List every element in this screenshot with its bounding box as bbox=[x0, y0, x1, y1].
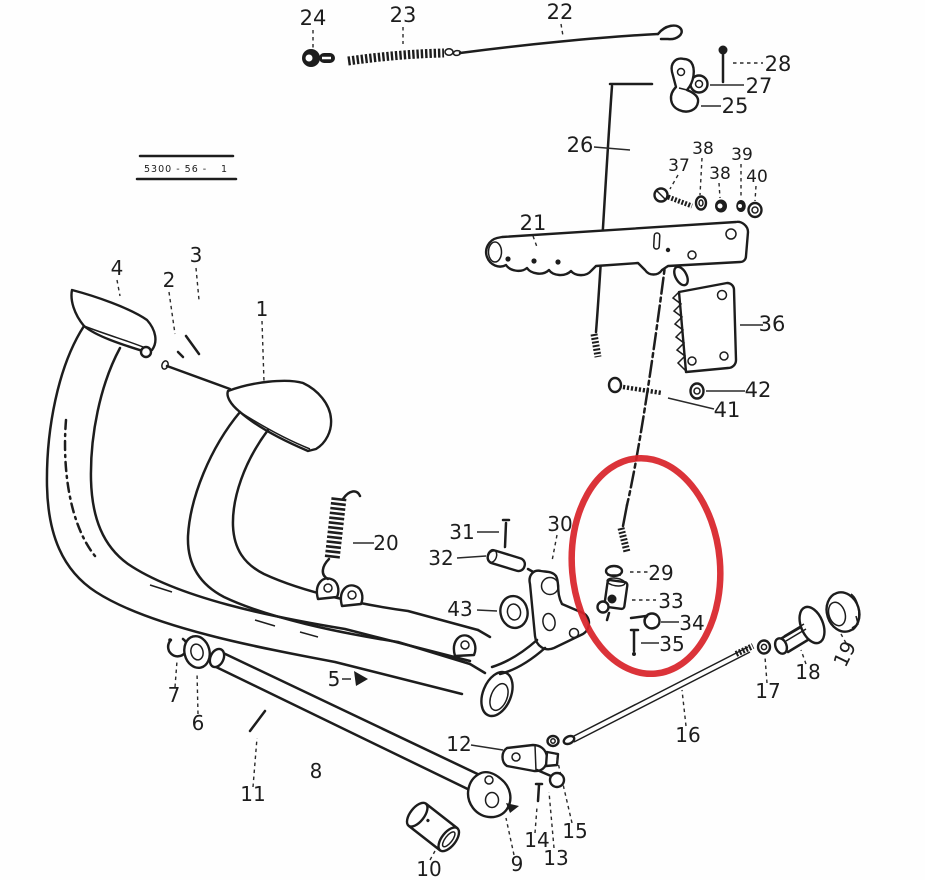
part-label-28: 28 bbox=[765, 52, 792, 76]
part-label-35: 35 bbox=[659, 632, 684, 656]
part-18-shaft: 18 bbox=[773, 603, 829, 684]
leader-4 bbox=[117, 280, 120, 296]
shaft-lug bbox=[317, 578, 338, 599]
part-label-4: 4 bbox=[111, 256, 124, 280]
part-label-9: 9 bbox=[511, 852, 524, 876]
part-21-rivet bbox=[505, 256, 510, 261]
leader-6 bbox=[197, 672, 198, 714]
part-label-21: 21 bbox=[520, 211, 547, 235]
title-block: 5300 - 56 - 1 bbox=[137, 156, 236, 179]
leader-11 bbox=[253, 738, 257, 787]
part-34-shaft bbox=[631, 616, 646, 618]
part-22-hook bbox=[658, 26, 682, 40]
part-21-quadrant-lever: 21 bbox=[486, 211, 748, 287]
leader-32 bbox=[457, 556, 486, 558]
part-23-tip bbox=[445, 49, 453, 55]
highlight-ellipse bbox=[563, 452, 729, 680]
part-label-12: 12 bbox=[446, 732, 471, 756]
part-label-42: 42 bbox=[745, 378, 772, 402]
part-40-nut bbox=[749, 203, 762, 217]
part-label-36: 36 bbox=[759, 312, 786, 336]
part-label-38b: 38 bbox=[709, 164, 731, 184]
part-label-14: 14 bbox=[524, 828, 549, 852]
part-15-body bbox=[548, 736, 559, 746]
part-6-outer bbox=[181, 633, 213, 670]
part-label-25: 25 bbox=[722, 94, 749, 118]
part-10-closed-end bbox=[403, 799, 431, 830]
part-label-15: 15 bbox=[562, 819, 587, 843]
part-26-threads bbox=[594, 334, 598, 357]
part-26-shaft bbox=[596, 86, 612, 332]
leader-22 bbox=[561, 24, 563, 36]
part-21-dot bbox=[666, 248, 670, 252]
part-12-clevis: 12 bbox=[446, 732, 558, 771]
leader-37 bbox=[670, 175, 678, 189]
part-6-washer: 6 bbox=[181, 633, 213, 735]
part-30-arm-tail bbox=[492, 640, 545, 674]
leader-16 bbox=[682, 690, 686, 726]
part-label-43: 43 bbox=[447, 597, 472, 621]
part-label-22: 22 bbox=[547, 0, 574, 24]
leader-9 bbox=[506, 818, 514, 855]
part-label-29: 29 bbox=[648, 561, 673, 585]
part-16-threads bbox=[736, 646, 753, 654]
control-rod-threads bbox=[621, 528, 627, 552]
part-38-nut-hole bbox=[718, 204, 723, 209]
control-rod-tip bbox=[623, 505, 627, 526]
part-12-body bbox=[503, 745, 548, 771]
part-label-40: 40 bbox=[746, 167, 768, 187]
part-label-8: 8 bbox=[310, 759, 323, 783]
part-36-serrated-plate: 36 bbox=[673, 283, 785, 372]
leader-30 bbox=[552, 535, 557, 561]
control-rod-shaft bbox=[627, 250, 667, 505]
part-18-end bbox=[773, 637, 789, 656]
leader-40 bbox=[755, 186, 756, 201]
part-37-bolt-shaft bbox=[668, 197, 692, 206]
part-label-23: 23 bbox=[390, 3, 417, 27]
part-label-30: 30 bbox=[547, 512, 572, 536]
part-21-trunnion-tab bbox=[671, 265, 690, 288]
parts-diagram-canvas: 5300 - 56 - 1 24 23 22 28 27 bbox=[0, 0, 925, 880]
part-21-rivet bbox=[531, 258, 536, 263]
part-16-rod: 16 bbox=[562, 646, 753, 747]
part-35-pin: 35 bbox=[631, 630, 685, 656]
part-32-clevis-pin: 32 bbox=[428, 546, 535, 573]
part-4-pedal-left: 4 bbox=[47, 256, 470, 694]
leader-12 bbox=[471, 745, 503, 750]
part-35-tip bbox=[632, 652, 636, 656]
control-rod-lower bbox=[621, 250, 667, 552]
part-38-washer bbox=[696, 197, 706, 210]
part-41-bolt: 41 bbox=[609, 378, 740, 422]
part-26-rod: 26 bbox=[567, 84, 652, 357]
part-label-7: 7 bbox=[168, 683, 181, 707]
part-10-cylinder bbox=[403, 799, 463, 854]
part-label-2: 2 bbox=[163, 268, 176, 292]
part-label-1: 1 bbox=[256, 297, 269, 321]
part-label-33: 33 bbox=[658, 589, 683, 613]
part-label-38: 38 bbox=[692, 139, 714, 159]
part-4-pivot-boss bbox=[141, 347, 151, 357]
part-label-3: 3 bbox=[190, 243, 203, 267]
leader-3 bbox=[196, 268, 199, 300]
leader-26 bbox=[594, 147, 630, 150]
part-23-threads bbox=[348, 53, 444, 61]
part-9-key: 9 bbox=[506, 803, 523, 876]
part-label-41: 41 bbox=[714, 398, 741, 422]
part-23-threaded-rod: 23 bbox=[348, 3, 453, 61]
part-13-shaft bbox=[537, 770, 551, 776]
part-label-32: 32 bbox=[428, 546, 453, 570]
part-label-31: 31 bbox=[449, 520, 474, 544]
part-8-end-plate bbox=[468, 772, 510, 817]
part-22-shaft bbox=[460, 34, 658, 53]
part-14-pin: 14 bbox=[524, 784, 549, 852]
part-label-17: 17 bbox=[755, 679, 780, 703]
part-22-hook-rod: 22 bbox=[453, 0, 682, 56]
part-2-pin: 2 bbox=[163, 268, 199, 357]
pedal-arm-left-outer bbox=[47, 326, 462, 694]
part-label-39: 39 bbox=[731, 145, 753, 165]
leader-13 bbox=[549, 792, 554, 848]
part-41-shaft bbox=[623, 387, 662, 393]
part-20-hook-bottom bbox=[323, 559, 329, 579]
part-16-shaft bbox=[572, 647, 750, 742]
part-10-open-end bbox=[435, 824, 463, 855]
part-3-body bbox=[167, 366, 230, 389]
part-label-11: 11 bbox=[240, 782, 265, 806]
title-block-sheet: 1 bbox=[221, 164, 228, 175]
parts-diagram-page: 5300 - 56 - 1 24 23 22 28 27 bbox=[0, 0, 925, 880]
part-43-outer bbox=[497, 594, 530, 631]
part-3-pin: 3 bbox=[161, 243, 230, 389]
title-block-code: 5300 - 56 - bbox=[144, 164, 207, 175]
part-39-washer-hole bbox=[738, 204, 742, 208]
shaft-lug bbox=[341, 585, 362, 606]
fastener-row: 37 38 38 39 40 bbox=[655, 139, 768, 217]
part-10-bushing: 10 bbox=[403, 799, 463, 880]
part-label-19: 19 bbox=[828, 637, 861, 670]
part-2-body bbox=[186, 336, 199, 354]
part-16-tip bbox=[562, 734, 575, 745]
part-label-26: 26 bbox=[567, 133, 594, 157]
part-1-pad bbox=[228, 381, 332, 451]
leader-15 bbox=[556, 754, 572, 823]
part-32-body bbox=[486, 549, 526, 573]
part-label-10: 10 bbox=[416, 857, 441, 880]
part-24-hole bbox=[306, 55, 313, 62]
pedal-arm-left-hatch bbox=[150, 585, 318, 637]
part-33-hole bbox=[608, 595, 617, 604]
part-2-tip bbox=[178, 352, 183, 357]
part-31-shaft bbox=[505, 523, 506, 547]
leader-38a bbox=[700, 158, 702, 195]
part-label-6: 6 bbox=[192, 711, 205, 735]
part-33-foot bbox=[607, 613, 609, 620]
part-label-16: 16 bbox=[675, 723, 700, 747]
part-33-knob bbox=[598, 602, 609, 613]
leader-2 bbox=[169, 292, 175, 334]
part-3-cap bbox=[161, 360, 170, 370]
part-31-cotter-pin: 31 bbox=[449, 520, 509, 547]
part-21-rivet bbox=[555, 259, 560, 264]
leader-1 bbox=[262, 321, 264, 382]
cross-tube-end bbox=[475, 667, 518, 720]
part-19-knob: 19 bbox=[822, 588, 865, 671]
part-12-fork-line bbox=[535, 745, 536, 771]
part-20-coils bbox=[332, 498, 339, 560]
part-17-body bbox=[758, 641, 770, 654]
part-20-spring: 20 bbox=[323, 491, 399, 579]
part-42-outer bbox=[691, 384, 704, 399]
part-24-cap-nut: 24 bbox=[300, 6, 335, 67]
shaft-lug bbox=[454, 635, 475, 656]
part-1-pedal-right: 1 bbox=[188, 297, 519, 721]
part-label-18: 18 bbox=[795, 660, 820, 684]
part-label-27: 27 bbox=[746, 74, 773, 98]
part-20-hook-top bbox=[343, 491, 360, 499]
part-5-pin: 5 bbox=[328, 667, 368, 691]
part-11-body bbox=[250, 711, 265, 731]
part-4-pad bbox=[72, 290, 156, 352]
part-7-curl bbox=[168, 638, 172, 642]
part-label-24: 24 bbox=[300, 6, 327, 30]
part-5-body bbox=[354, 671, 368, 686]
part-14-shaft bbox=[538, 785, 539, 801]
leader-41 bbox=[668, 398, 714, 409]
part-18-disc bbox=[795, 603, 830, 646]
part-label-5: 5 bbox=[328, 667, 341, 691]
leader-43 bbox=[477, 610, 497, 611]
part-label-20: 20 bbox=[373, 531, 398, 555]
part-41-head bbox=[609, 378, 621, 392]
leader-38b bbox=[719, 183, 720, 198]
part-25-latch-hook: 25 bbox=[671, 59, 748, 118]
part-11-pin: 11 bbox=[240, 711, 265, 806]
part-10-dot bbox=[426, 818, 430, 822]
part-label-37: 37 bbox=[668, 156, 690, 176]
